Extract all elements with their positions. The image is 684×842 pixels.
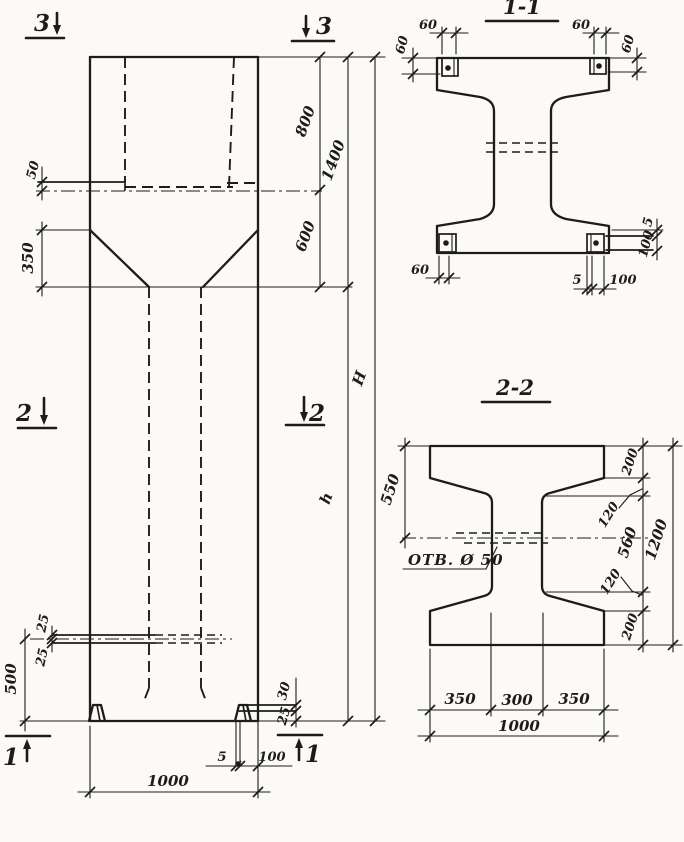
dim-tl-60w-label: 60 <box>419 18 437 33</box>
section-view-1-1: 1-1 <box>393 0 663 295</box>
section-1-1-hole <box>486 143 558 152</box>
dim-550-label: 550 <box>377 471 404 507</box>
dim-tr-60h-label: 60 <box>619 33 638 54</box>
dim-width-1000: 1000 <box>78 772 270 797</box>
hole-callout: ОТВ. Ø 50 <box>403 547 504 569</box>
section-mark-2-left: 2 <box>15 398 56 428</box>
dim-b-5-label: 5 <box>572 273 581 288</box>
section-1-1-title: 1-1 <box>486 0 558 21</box>
dim-slot-25-25: 25 25 <box>33 613 57 669</box>
dim-taper-350: 350 <box>19 222 47 296</box>
drawing-sheet: 50 350 25 25 500 800 600 1400 <box>0 0 684 842</box>
dim-H-overall: H <box>348 52 380 726</box>
dim-25-upper-label: 25 <box>34 613 53 635</box>
dim-1000-label: 1000 <box>147 772 189 790</box>
dim-350-label: 350 <box>19 242 37 274</box>
mark-3-left-label: 3 <box>34 10 50 37</box>
dim-25-lower-label: 25 <box>33 647 52 669</box>
hole-label: ОТВ. Ø 50 <box>408 551 504 569</box>
dim-1400-label: 1400 <box>318 137 349 183</box>
mark-2-right-label: 2 <box>308 400 325 427</box>
dim-chain-1400-h: 1400 h <box>316 52 353 726</box>
dim-50-label: 50 <box>24 159 43 180</box>
dim-b1000-label: 1000 <box>498 717 540 735</box>
dim-300-label: 300 <box>501 691 533 709</box>
mark-3-right-label: 3 <box>316 13 332 40</box>
dim-foot-25-label: 25 <box>275 705 294 727</box>
dim-800-label: 800 <box>291 103 319 139</box>
section-2-2-dims: 550 200 120 560 120 200 1200 <box>377 438 682 742</box>
dim-350-left-label: 350 <box>444 690 476 708</box>
dim-bl-60-label: 60 <box>411 263 429 278</box>
section-mark-3-right: 3 <box>292 13 334 41</box>
section-2-2-title-label: 2-2 <box>495 375 534 400</box>
section-1-1-outline <box>437 58 609 253</box>
dim-h-label: h <box>316 490 337 506</box>
dim-500: 500 <box>2 629 30 731</box>
dim-200-bottom-label: 200 <box>619 612 642 643</box>
dim-b-100-label: 100 <box>609 273 636 288</box>
dim-120-bottom-label: 120 <box>597 567 624 598</box>
embedded-plates <box>439 58 653 252</box>
dim-r-5-label: 5 <box>640 216 657 229</box>
dim-600-label: 600 <box>291 218 319 254</box>
dim-tl-60h-label: 60 <box>393 34 412 55</box>
dim-350-right-label: 350 <box>558 690 590 708</box>
dim-foot-30-label: 30 <box>275 680 294 701</box>
section-1-1-title-label: 1-1 <box>503 0 541 19</box>
section-mark-3-left: 3 <box>26 10 64 38</box>
dim-plate-100-label: 100 <box>258 750 285 765</box>
dim-120-top-label: 120 <box>595 500 622 531</box>
hidden-edges <box>125 57 258 701</box>
mark-1-right-label: 1 <box>305 741 321 768</box>
dim-plate-5-label: 5 <box>217 750 226 765</box>
section-view-2-2: 2-2 ОТВ. Ø 50 550 <box>377 375 682 742</box>
dim-slot-50: 50 <box>24 159 47 200</box>
dim-200-top-label: 200 <box>619 447 642 478</box>
dim-H-label: H <box>348 368 370 389</box>
column-elevation: 50 350 25 25 500 800 600 1400 <box>2 10 385 798</box>
section-2-2-title: 2-2 <box>482 375 550 402</box>
dim-500-label: 500 <box>2 663 20 695</box>
dim-foot-30-25: 30 25 <box>275 678 301 728</box>
dim-plate-5-100: 5 100 <box>206 750 292 771</box>
dim-1200-label: 1200 <box>641 516 671 562</box>
section-mark-2-right: 2 <box>286 397 325 427</box>
dim-560-label: 560 <box>614 524 641 560</box>
column-outline <box>90 57 258 721</box>
section-2-2-outline <box>430 446 604 645</box>
mark-1-left-label: 1 <box>3 744 19 771</box>
mark-2-left-label: 2 <box>15 400 32 427</box>
section-mark-1-left: 1 <box>3 736 50 771</box>
dim-tr-60w-label: 60 <box>572 18 590 33</box>
section-2-2-hole <box>402 533 650 543</box>
